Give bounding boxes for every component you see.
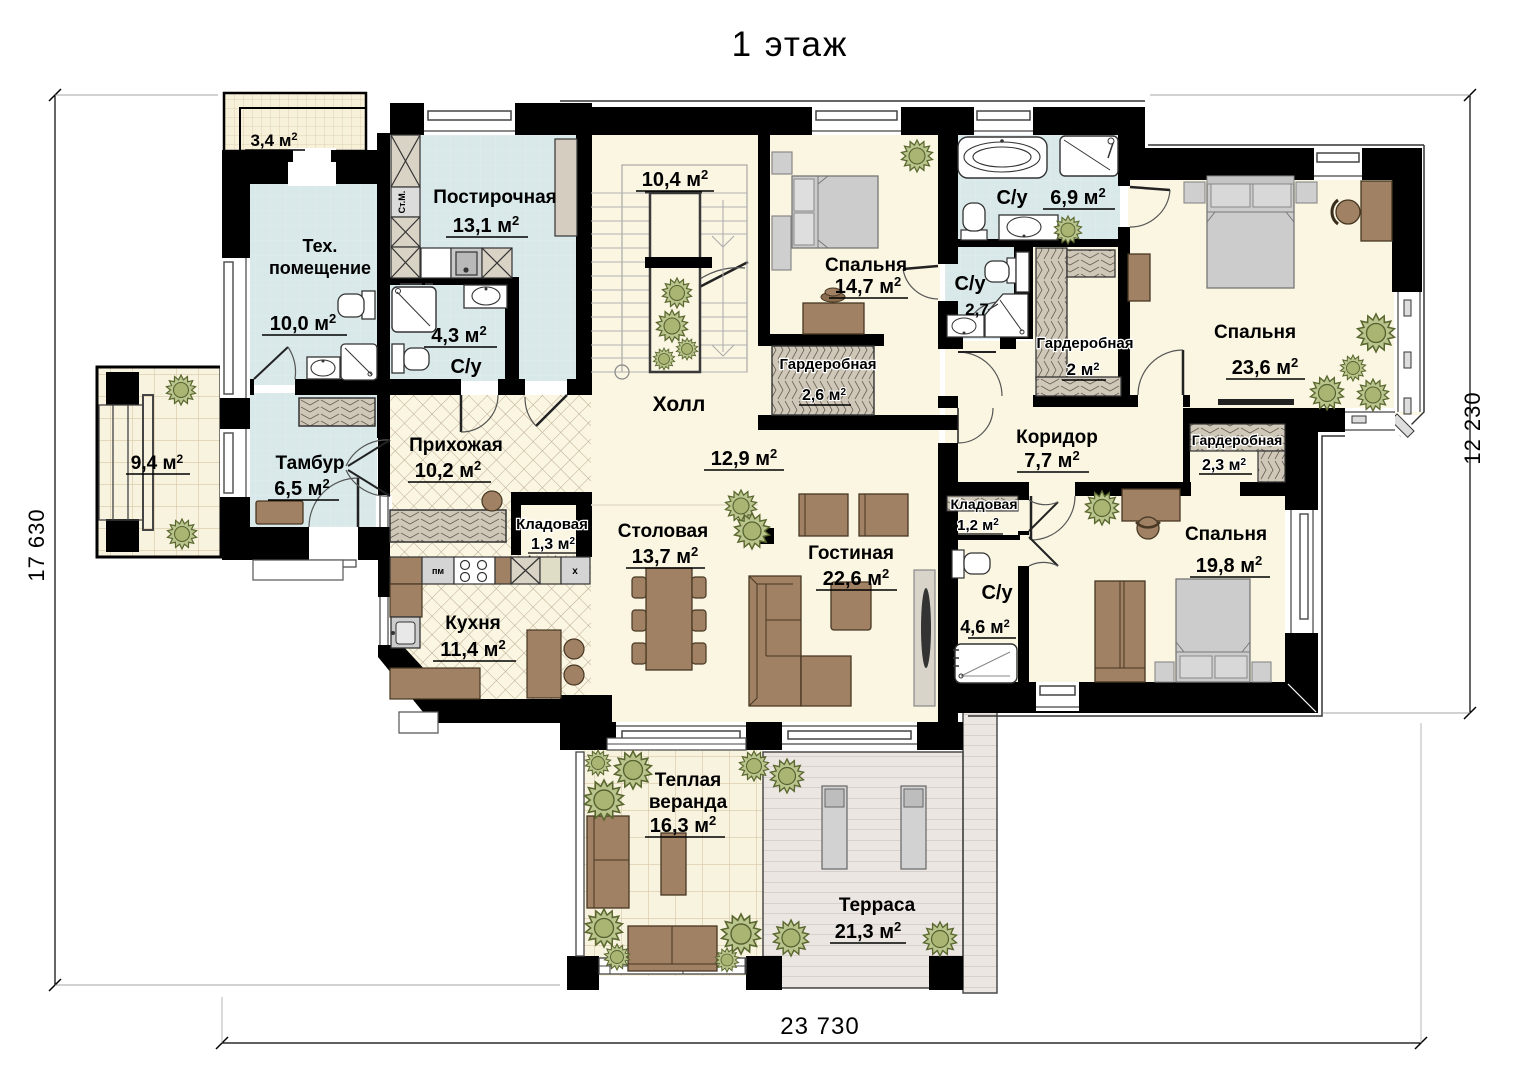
svg-text:1 этаж: 1 этаж	[732, 25, 849, 64]
svg-text:23,6 м2: 23,6 м2	[1232, 355, 1299, 379]
svg-text:22,6 м2: 22,6 м2	[823, 566, 890, 590]
svg-text:помещение: помещение	[269, 258, 371, 278]
svg-text:2,3 м2: 2,3 м2	[1202, 457, 1247, 474]
svg-text:10,0 м2: 10,0 м2	[270, 311, 337, 335]
svg-text:веранда: веранда	[649, 792, 728, 813]
svg-text:10,4 м2: 10,4 м2	[642, 167, 709, 191]
svg-text:С/у: С/у	[954, 273, 986, 295]
svg-text:10,2 м2: 10,2 м2	[415, 458, 482, 482]
svg-text:13,7 м2: 13,7 м2	[632, 544, 699, 568]
svg-text:4,6 м2: 4,6 м2	[960, 617, 1009, 637]
svg-text:Кладовая: Кладовая	[516, 516, 588, 533]
svg-text:19,8 м2: 19,8 м2	[1196, 553, 1263, 577]
svg-text:2,7: 2,7	[965, 300, 989, 319]
svg-text:Холл: Холл	[653, 393, 706, 416]
svg-text:С/у: С/у	[450, 356, 482, 378]
svg-text:С/у: С/у	[981, 582, 1013, 604]
svg-text:Кухня: Кухня	[445, 613, 501, 634]
svg-text:Столовая: Столовая	[618, 521, 708, 542]
svg-text:1,3 м2: 1,3 м2	[531, 536, 576, 553]
svg-text:23 730: 23 730	[780, 1013, 859, 1040]
svg-text:С/у: С/у	[996, 187, 1028, 209]
svg-text:12 230: 12 230	[1460, 391, 1485, 464]
svg-text:Гардеробная: Гардеробная	[779, 356, 876, 373]
svg-text:21,3 м2: 21,3 м2	[835, 919, 902, 943]
svg-text:Терраса: Терраса	[839, 895, 916, 916]
svg-text:Спальня: Спальня	[1214, 322, 1296, 343]
svg-text:6,9 м2: 6,9 м2	[1050, 185, 1105, 209]
svg-text:Прихожая: Прихожая	[409, 435, 503, 456]
svg-text:Коридор: Коридор	[1016, 427, 1098, 448]
svg-text:Гардеробная: Гардеробная	[1192, 432, 1283, 448]
svg-text:3,4 м2: 3,4 м2	[250, 131, 297, 150]
svg-text:6,5 м2: 6,5 м2	[274, 476, 329, 500]
svg-text:9,4 м2: 9,4 м2	[131, 452, 184, 474]
svg-text:7,7 м2: 7,7 м2	[1024, 448, 1079, 472]
svg-text:Спальня: Спальня	[1185, 524, 1267, 545]
svg-text:13,1 м2: 13,1 м2	[453, 213, 520, 237]
svg-text:Ст.М.: Ст.М.	[397, 191, 407, 214]
svg-text:Гостиная: Гостиная	[808, 543, 894, 564]
svg-text:11,4 м2: 11,4 м2	[440, 637, 505, 661]
svg-text:Кладовая: Кладовая	[950, 496, 1017, 512]
svg-text:16,3 м2: 16,3 м2	[650, 813, 717, 837]
svg-text:1,2 м2: 1,2 м2	[957, 517, 999, 534]
svg-text:Тех.: Тех.	[303, 236, 338, 256]
svg-text:12,9 м2: 12,9 м2	[711, 446, 778, 470]
svg-text:2,6 м2: 2,6 м2	[802, 387, 847, 404]
svg-text:пм: пм	[432, 566, 444, 576]
svg-text:Тамбур: Тамбур	[276, 453, 345, 474]
svg-text:Спальня: Спальня	[825, 255, 907, 276]
svg-text:x: x	[572, 566, 578, 577]
svg-text:14,7 м2: 14,7 м2	[835, 274, 902, 298]
svg-text:Постирочная: Постирочная	[433, 187, 556, 208]
svg-text:Гардеробная: Гардеробная	[1036, 335, 1133, 352]
svg-text:17 630: 17 630	[24, 508, 49, 581]
svg-text:Теплая: Теплая	[655, 770, 721, 791]
svg-text:4,3 м2: 4,3 м2	[431, 323, 486, 347]
